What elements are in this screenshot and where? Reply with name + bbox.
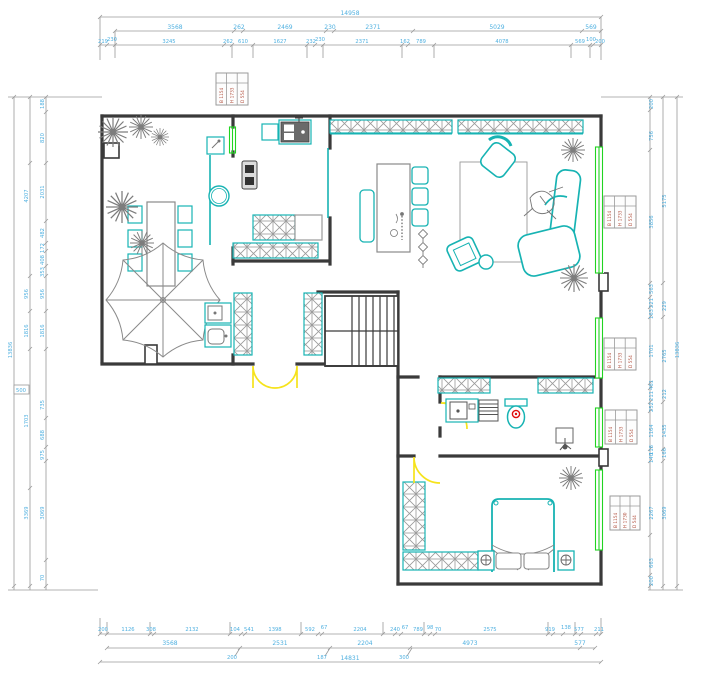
- window-schedule-tag: B 1154 H 1733 D 554: [604, 338, 636, 370]
- dim-label: 1398: [268, 627, 281, 633]
- dim-label: 2531: [272, 640, 287, 647]
- tag-text: B 1154: [219, 87, 225, 103]
- toilet: [505, 399, 527, 428]
- dim-label: 735: [40, 400, 46, 410]
- dim-label: 212: [662, 389, 668, 399]
- plant-icon: [98, 117, 128, 147]
- dim-label: 2031: [40, 185, 46, 198]
- wall-notch: [599, 273, 608, 291]
- tag-text: H 1733: [618, 210, 624, 226]
- dim-label: 5029: [489, 24, 504, 31]
- dim-label: 569: [575, 39, 585, 45]
- plant-icon: [559, 466, 583, 490]
- dim-label: 230: [107, 37, 117, 43]
- tag-text: H 1733: [619, 426, 625, 442]
- bathroom: [446, 399, 573, 450]
- pillar: [104, 143, 119, 158]
- dim-label: 3245: [162, 39, 175, 45]
- dim-label: 300: [399, 655, 409, 661]
- dimension-labels-bottom: 200 1126 308 2132 104 541 1398 592 67 22…: [98, 625, 604, 662]
- stool: [412, 209, 428, 226]
- wardrobe-horizontal: [403, 552, 478, 570]
- dim-label: 975: [40, 450, 46, 460]
- stool: [412, 167, 428, 184]
- tag-text: D 554: [628, 355, 634, 368]
- dim-label: 252: [649, 402, 655, 412]
- dim-label: 240: [390, 627, 400, 633]
- plant-icon: [561, 138, 585, 162]
- dim-label: 610: [238, 39, 248, 45]
- small-plant-icon: [418, 229, 427, 242]
- dim-label: 2267: [649, 506, 655, 519]
- dim-label: 4973: [462, 640, 477, 647]
- vanity-sink: [446, 399, 478, 422]
- kitchen-counter-plain: [295, 215, 322, 240]
- dim-label: 14958: [340, 10, 359, 17]
- dim-label: 461: [649, 380, 655, 390]
- dim-label: 1164: [649, 424, 655, 438]
- dim-label: 187: [317, 655, 327, 661]
- dim-label: 3069: [40, 506, 46, 519]
- dim-label: 14831: [340, 655, 359, 662]
- dim-label: 2204: [353, 627, 367, 633]
- bedroom: [478, 466, 583, 572]
- dim-label: 500: [16, 388, 26, 394]
- dim-label: 200: [649, 99, 655, 109]
- kitchen-box: [262, 124, 278, 140]
- bed: [492, 499, 554, 572]
- dim-label: 70: [40, 575, 46, 582]
- dim-label: 98: [427, 625, 434, 631]
- floor-plan-svg: 14958 3568 262 2469 230 2371 5029 569 21…: [0, 0, 707, 679]
- small-plant-icon: [418, 242, 427, 255]
- dim-label: 188: [40, 99, 46, 109]
- dim-label: 104: [230, 627, 241, 633]
- dim-label: 541: [244, 627, 254, 633]
- sofa: [516, 169, 582, 279]
- dim-label: 482: [40, 228, 46, 238]
- dim-label: 13836: [675, 342, 681, 359]
- dim-label: 262: [223, 39, 233, 45]
- dim-label: 221: [649, 298, 655, 308]
- dim-label: 919: [545, 627, 555, 633]
- tag-text: H 1733: [230, 87, 236, 103]
- kitchen-lower-cabinet: [233, 243, 318, 258]
- hall-cabinet-left: [234, 293, 252, 355]
- hall-cabinet-right: [304, 293, 322, 355]
- tag-text: D 554: [629, 429, 635, 442]
- pillow: [524, 553, 549, 569]
- window-schedule-tag: B 1154 H 1733 D 554: [605, 410, 637, 444]
- dim-label: 166: [662, 448, 668, 458]
- dim-label: 592: [305, 627, 315, 633]
- dim-label: 140: [649, 453, 655, 463]
- dim-label: 2469: [277, 24, 292, 31]
- dim-label: 569: [585, 24, 597, 31]
- window-schedule-tag: B 1154 H 1733 D 554: [216, 73, 248, 105]
- dim-label: 172: [40, 243, 46, 253]
- dim-label: 67: [402, 625, 409, 631]
- dining-table: [147, 202, 175, 286]
- window-schedule-tag: B 1154 H 1730 D 544: [610, 496, 640, 530]
- small-plant-icon: [418, 255, 427, 268]
- plant-icon: [151, 128, 169, 146]
- bathroom-cabinet-right: [538, 378, 593, 393]
- plant-icon: [129, 115, 153, 139]
- dimension-labels-right: 200 756 3856 563 221 163 1701 461 211 25…: [649, 99, 681, 586]
- pillow: [496, 553, 521, 569]
- bathroom-cabinet-left: [438, 378, 490, 393]
- dim-label: 262: [233, 24, 245, 31]
- dim-label: 3369: [24, 506, 30, 519]
- dim-label: 2575: [483, 627, 496, 633]
- dim-label: 956: [40, 289, 46, 299]
- dim-label: 2132: [185, 627, 198, 633]
- stool: [412, 188, 428, 205]
- tag-text: H 1733: [618, 352, 624, 368]
- dim-label: 2371: [365, 24, 380, 31]
- dim-label: 200: [649, 576, 655, 586]
- chair: [178, 206, 192, 223]
- nightstand: [558, 551, 574, 570]
- dim-label: 1703: [24, 414, 30, 427]
- dim-label: 353: [40, 267, 46, 277]
- small-appliance: [207, 137, 224, 154]
- tag-text: D 554: [240, 90, 246, 103]
- dim-label: 4207: [24, 189, 30, 202]
- tag-text: D 544: [632, 515, 638, 528]
- dim-label: 1816: [40, 324, 46, 337]
- washing-machine: [479, 400, 498, 421]
- round-basin: [209, 186, 229, 206]
- dim-label: 229: [662, 301, 668, 311]
- dim-label: 211: [649, 391, 655, 401]
- kitchen-sink: [279, 118, 311, 144]
- side-table: [479, 255, 493, 269]
- stove: [242, 161, 257, 189]
- dim-label: 1435: [662, 424, 668, 437]
- plant-icon: [130, 231, 154, 255]
- dim-label: 3568: [167, 24, 182, 31]
- dim-label: 230: [324, 24, 336, 31]
- dim-label: 308: [146, 627, 156, 633]
- cabinet-living-top-left: [330, 120, 452, 133]
- umbrella: [106, 243, 220, 357]
- dimension-labels-top: 14958 3568 262 2469 230 2371 5029 569 21…: [98, 10, 605, 45]
- dim-label: 2765: [662, 349, 668, 362]
- chair: [178, 230, 192, 247]
- dim-label: 956: [24, 289, 30, 299]
- tag-text: B 1154: [607, 352, 613, 368]
- bar-table: [377, 164, 410, 252]
- dim-label: 756: [649, 131, 655, 141]
- dim-label: 1126: [121, 627, 134, 633]
- armchair: [478, 137, 517, 180]
- dim-label: 162: [400, 39, 410, 45]
- armchair: [445, 235, 482, 272]
- door-arc: [414, 457, 440, 483]
- dim-label: 3069: [662, 506, 668, 519]
- dim-label: 688: [40, 430, 46, 440]
- dim-label: 577: [574, 627, 584, 633]
- plant-icon: [560, 264, 588, 292]
- dim-label: 13836: [8, 342, 14, 359]
- dim-label: 3568: [162, 640, 177, 647]
- dim-label: 200: [98, 627, 108, 633]
- tag-text: H 1730: [623, 512, 629, 528]
- wall-notch: [599, 449, 608, 466]
- dim-label: 70: [435, 627, 442, 633]
- tag-text: B 1154: [608, 426, 614, 442]
- dim-label: 138: [561, 625, 571, 631]
- dim-label: 5175: [662, 194, 668, 207]
- door-arc: [275, 366, 297, 388]
- tag-text: B 1154: [607, 210, 613, 226]
- door-arc: [253, 366, 275, 388]
- cabinet-living-top-right: [458, 120, 583, 133]
- kitchen-counter-cabinet: [253, 215, 295, 240]
- dim-label: 211: [594, 627, 604, 633]
- nightstand: [478, 551, 494, 570]
- dim-label: 577: [574, 640, 586, 647]
- doors: [253, 366, 467, 483]
- dim-label: 1627: [273, 39, 286, 45]
- dim-label: 163: [649, 309, 655, 319]
- bench: [360, 190, 374, 242]
- dim-label: 230: [315, 37, 325, 43]
- dim-label: 3856: [649, 215, 655, 228]
- dim-label: 563: [649, 284, 655, 294]
- dim-label: 408: [40, 255, 46, 265]
- dim-label: 2204: [357, 640, 372, 647]
- terrace-sink-unit: [205, 303, 231, 347]
- dim-label: 67: [321, 625, 328, 631]
- dim-label: 200: [595, 39, 605, 45]
- tag-text: D 554: [628, 213, 634, 226]
- dim-label: 200: [227, 655, 237, 661]
- dim-label: 789: [413, 627, 423, 633]
- dim-label: 663: [649, 558, 655, 568]
- living-room: [360, 137, 588, 292]
- plant-icon: [106, 191, 138, 223]
- pillar: [145, 345, 157, 364]
- dim-label: 1701: [649, 344, 655, 357]
- dim-label: 2371: [355, 39, 368, 45]
- dim-label: 789: [416, 39, 426, 45]
- dim-label: 4078: [495, 39, 508, 45]
- dim-label: 1816: [24, 324, 30, 337]
- floor-plan-canvas: 14958 3568 262 2469 230 2371 5029 569 21…: [0, 0, 707, 679]
- window-schedule-tag: B 1154 H 1733 D 554: [604, 196, 636, 228]
- staircase: [325, 296, 398, 366]
- tag-text: B 1154: [613, 512, 619, 528]
- wardrobe-vertical: [403, 482, 425, 550]
- dim-label: 820: [40, 133, 46, 143]
